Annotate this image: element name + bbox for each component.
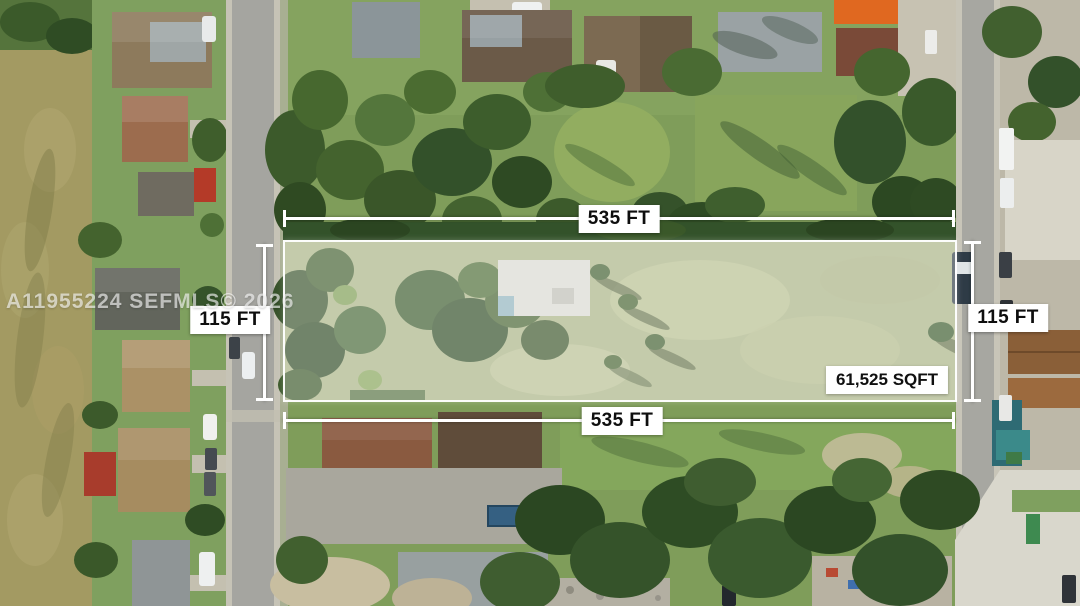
lot-area-badge: 61,525 SQFT	[826, 366, 948, 394]
aerial-listing-photo: 535 FT 535 FT 115 FT 115 FT 61,525 SQFT …	[0, 0, 1080, 606]
mls-watermark: A11955224 SEFMLS© 2026	[6, 290, 294, 314]
top-measure-label: 535 FT	[579, 205, 660, 233]
right-measure-label: 115 FT	[968, 304, 1048, 332]
bottom-measure-label: 535 FT	[582, 407, 663, 435]
